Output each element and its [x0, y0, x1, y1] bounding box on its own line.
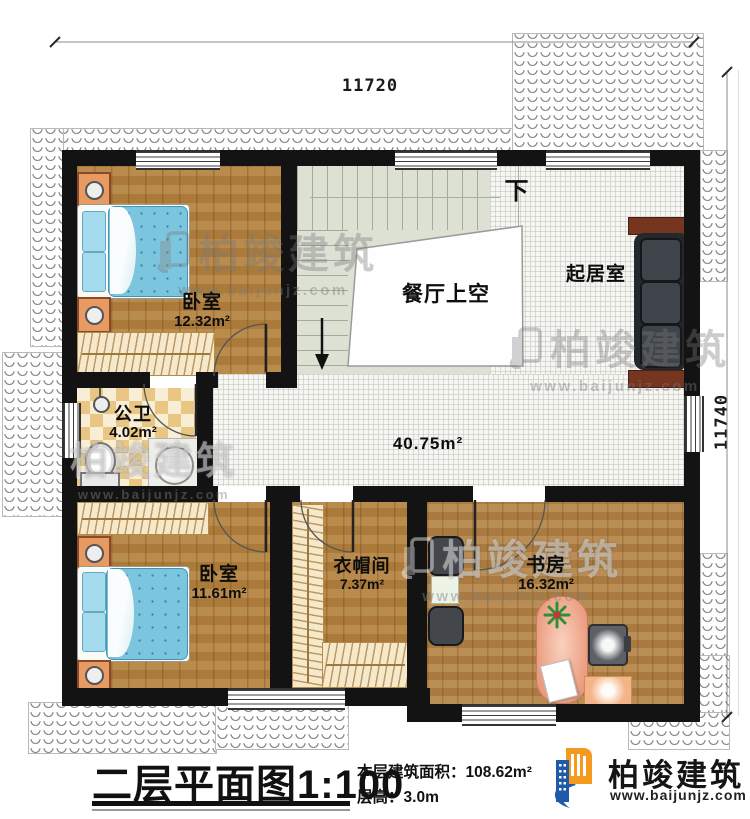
roof-tiles [700, 150, 728, 282]
side-table [431, 576, 459, 604]
room-label-study: 书房 16.32m² [518, 556, 574, 593]
wall [497, 150, 546, 166]
pillow [82, 211, 106, 252]
wall [407, 502, 427, 722]
hall-floor [213, 374, 684, 486]
sofa-cushion [640, 281, 682, 325]
company-logo-url: www.baijunjz.com [610, 787, 747, 803]
sofa-armrest [628, 370, 686, 388]
nightstand [77, 536, 111, 570]
room-label-bedroom1: 卧室 12.32m² [174, 293, 230, 330]
roof-tiles [30, 128, 64, 347]
window [462, 704, 556, 726]
wall [197, 372, 213, 502]
plant [542, 600, 572, 630]
wall [62, 150, 77, 403]
wall [270, 502, 292, 688]
wardrobe [77, 332, 215, 376]
dimension-top: 11720 [330, 76, 410, 96]
window [136, 150, 220, 170]
wall [353, 486, 473, 502]
wardrobe [77, 502, 209, 535]
roof-tiles [697, 655, 730, 717]
wall [62, 372, 150, 388]
roof-tiles [2, 352, 64, 517]
nightstand [77, 297, 111, 333]
window [228, 688, 345, 710]
floor-plan: 11720 11740 [0, 0, 750, 819]
wardrobe [292, 504, 324, 688]
roof-tiles [512, 33, 704, 166]
wall [62, 486, 213, 502]
wall [266, 486, 300, 502]
wall [266, 372, 281, 388]
pillow [82, 612, 106, 652]
wall [545, 486, 684, 502]
window [395, 150, 497, 170]
title-underline [92, 801, 350, 806]
window [684, 396, 704, 452]
wall [213, 486, 218, 502]
roof-tiles [700, 553, 728, 657]
floor-height-info: 层高：3.0m [357, 785, 439, 807]
stairs-upper-flight [297, 166, 490, 230]
window [62, 403, 81, 458]
nightstand [77, 172, 111, 208]
wall [281, 166, 297, 388]
extension-line [738, 70, 739, 716]
pillow [82, 572, 106, 612]
room-label-dining-void: 餐厅上空 [402, 285, 490, 305]
lamp-table [584, 676, 632, 705]
guest-chair [428, 536, 464, 576]
chair-arm [624, 636, 631, 652]
wall [556, 704, 700, 722]
floor-area-info: 本层建筑面积：108.62m² [357, 760, 532, 782]
room-label-bathroom: 公卫 4.02m² [109, 404, 157, 441]
stair-guard-line [310, 197, 500, 198]
wall [220, 150, 395, 166]
room-label-bedroom2: 卧室 11.61m² [191, 565, 246, 602]
dimension-right: 11740 [712, 392, 732, 452]
room-label-living: 起居室 [566, 265, 626, 285]
window [546, 150, 650, 170]
wardrobe [322, 642, 409, 688]
light-pull [93, 396, 110, 413]
stairs-down-label: 下 [505, 182, 530, 202]
sofa-cushion [640, 238, 682, 282]
stairs-lower-flight [297, 230, 348, 374]
sink-basin [155, 446, 194, 485]
sofa-cushion [640, 324, 682, 368]
desk-chair [588, 624, 628, 666]
wall [684, 452, 700, 722]
room-label-hall: 40.75m² [393, 434, 463, 454]
title-underline-thin [92, 809, 350, 811]
company-logo-icon [540, 744, 604, 812]
wall [684, 150, 700, 396]
room-label-cloakroom: 衣帽间 7.37m² [334, 556, 391, 593]
guest-chair [428, 606, 464, 646]
roof-tiles [28, 702, 217, 754]
pillow [82, 252, 106, 292]
nightstand [77, 660, 111, 690]
wall [62, 688, 228, 706]
